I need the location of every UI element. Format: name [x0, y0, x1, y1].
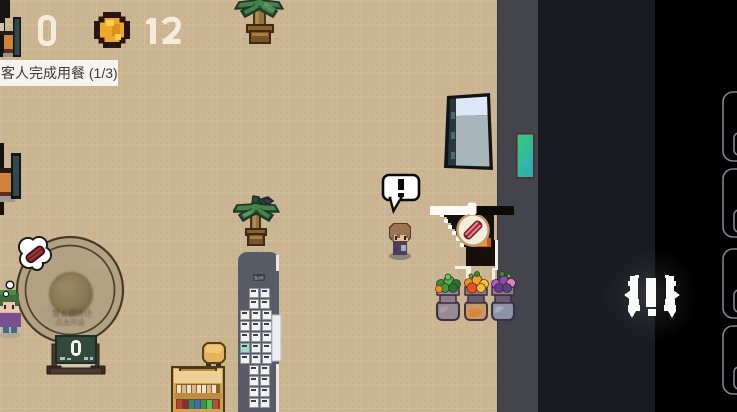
svg-text:点击开店: 点击开店 — [55, 317, 85, 327]
svg-text:营业额统计: 营业额统计 — [52, 308, 92, 318]
svg-text:BAR: BAR — [254, 276, 264, 281]
